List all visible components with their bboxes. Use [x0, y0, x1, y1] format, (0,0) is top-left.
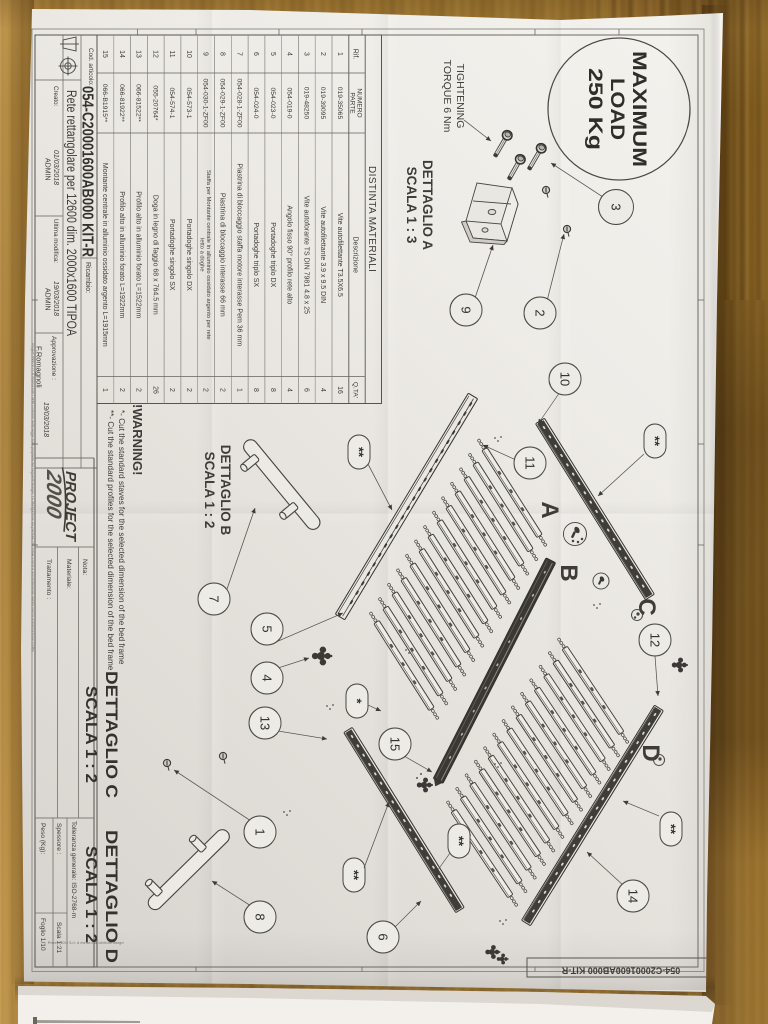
svg-text:DETTAGLIO D: DETTAGLIO D: [102, 830, 121, 963]
svg-text:Creato:: Creato:: [52, 86, 59, 107]
svg-text:Vite autofilettante T3.5X6.5: Vite autofilettante T3.5X6.5: [336, 213, 343, 297]
svg-text:3: 3: [302, 52, 309, 56]
svg-text:2: 2: [319, 52, 326, 56]
svg-text:2: 2: [118, 388, 125, 392]
svg-text:15: 15: [387, 737, 402, 751]
svg-text:Materiale:: Materiale:: [65, 559, 72, 589]
svg-text:054-019-0: 054-019-0: [286, 88, 293, 119]
svg-text:Project 2000 S.r.l. si riserva: Project 2000 S.r.l. si riserva tutti i d…: [31, 343, 35, 652]
svg-text:3: 3: [608, 203, 623, 210]
svg-text:19/03/2018: 19/03/2018: [52, 281, 59, 316]
svg-text:10: 10: [185, 50, 192, 58]
svg-text:**: **: [347, 870, 362, 881]
svg-text:TORQUE 6 Nm: TORQUE 6 Nm: [441, 60, 453, 133]
svg-text:Profilo alto in alluminio fora: Profilo alto in alluminio forato L=1522m…: [135, 191, 142, 318]
svg-text:054-574-1: 054-574-1: [168, 88, 175, 119]
svg-text:Staffa per Montante centrale i: Staffa per Montante centrale in allumini…: [205, 170, 211, 340]
svg-text:1: 1: [252, 828, 267, 835]
svg-text:4: 4: [319, 388, 326, 392]
svg-text:054-028-1-ZF00: 054-028-1-ZF00: [235, 78, 242, 127]
svg-text:LOAD: LOAD: [606, 78, 628, 140]
svg-text:letto a doghe: letto a doghe: [199, 238, 205, 272]
svg-text:Piastrina di bloccaggio staff: Piastrina di bloccaggio staffa motore in…: [235, 163, 242, 346]
svg-text:019-39095: 019-39095: [319, 87, 326, 120]
svg-text:9: 9: [458, 306, 473, 313]
svg-text:Piastrina di bloccaggio intera: Piastrina di bloccaggio interasse 66 mm: [219, 193, 226, 317]
svg-text:2: 2: [168, 388, 175, 392]
svg-text:11: 11: [522, 456, 537, 470]
svg-text:054-C20001600AB000 KIT-R: 054-C20001600AB000 KIT-R: [561, 966, 680, 976]
svg-text:7: 7: [206, 595, 221, 602]
svg-text:Rif.: Rif.: [352, 49, 359, 60]
svg-text:PARTE: PARTE: [349, 92, 356, 114]
svg-text:1: 1: [336, 52, 343, 56]
svg-text:8: 8: [269, 388, 276, 392]
svg-text:019-35065: 019-35065: [336, 87, 343, 120]
svg-text:Portadoghe triplo DX: Portadoghe triplo DX: [269, 222, 276, 287]
svg-text:15: 15: [101, 50, 108, 58]
svg-text:11: 11: [168, 50, 175, 57]
svg-text:**: **: [648, 436, 663, 447]
svg-text:5: 5: [269, 52, 276, 56]
svg-text:066-81922**: 066-81922**: [118, 84, 125, 122]
svg-text:Scala 1:21: Scala 1:21: [55, 922, 62, 953]
svg-text:26: 26: [151, 386, 158, 394]
svg-text:Foglio 1/10: Foglio 1/10: [39, 918, 46, 951]
svg-text:066-B1915**: 066-B1915**: [101, 84, 108, 123]
svg-text:054-C20001600AB000 KIT-R: 054-C20001600AB000 KIT-R: [79, 86, 96, 257]
svg-text:14: 14: [625, 889, 640, 903]
svg-text:Tolleranza generale: ISO-2768-: Tolleranza generale: ISO-2768-m: [70, 821, 77, 919]
svg-text:F.Romagnoli: F.Romagnoli: [35, 346, 44, 388]
svg-text:1: 1: [235, 388, 242, 392]
svg-text:1: 1: [101, 388, 108, 392]
svg-text:Nota:: Nota:: [81, 559, 88, 575]
svg-text:054-573-1: 054-573-1: [185, 88, 192, 119]
svg-text:Peso (Kg):: Peso (Kg):: [39, 823, 46, 854]
svg-text:2: 2: [135, 388, 142, 392]
svg-text:Ultima modifica:: Ultima modifica:: [52, 219, 59, 263]
svg-text:**- Cut the standard profiles: **- Cut the standard profiles for the se…: [106, 410, 115, 671]
svg-text:7: 7: [235, 52, 242, 56]
svg-text:Portadoghe singolo DX: Portadoghe singolo DX: [185, 219, 192, 291]
svg-text:Ricambio:: Ricambio:: [84, 262, 91, 293]
svg-text:A: A: [536, 501, 563, 518]
svg-text:19/03/2018: 19/03/2018: [42, 402, 49, 437]
svg-text:054-023-0: 054-023-0: [269, 88, 276, 119]
svg-text:DETTAGLIO C: DETTAGLIO C: [102, 671, 121, 798]
svg-text:2: 2: [202, 388, 209, 392]
svg-text:019-48250: 019-48250: [302, 87, 309, 120]
svg-text:4: 4: [286, 52, 293, 56]
svg-text:2: 2: [532, 309, 547, 316]
svg-text:13: 13: [257, 716, 272, 730]
svg-text:Spessore :: Spessore :: [55, 823, 62, 855]
svg-text:**: **: [664, 824, 679, 835]
svg-text:SCALA 1 : 2: SCALA 1 : 2: [82, 846, 99, 943]
svg-text:054-029-1-ZF00: 054-029-1-ZF00: [219, 78, 226, 127]
svg-text:Approvazione :: Approvazione :: [50, 336, 57, 380]
svg-text:*- Cut the standard staves for: *- Cut the standard staves for the selec…: [117, 410, 126, 665]
svg-text:12: 12: [647, 633, 662, 647]
svg-text:5: 5: [259, 625, 274, 632]
svg-text:B: B: [555, 564, 582, 581]
svg-text:250 Kg: 250 Kg: [584, 68, 606, 150]
svg-text:DETTAGLIO A: DETTAGLIO A: [420, 160, 435, 250]
svg-text:Angolo fisso 90° profilo rete: Angolo fisso 90° profilo rete alto: [286, 205, 294, 304]
svg-text:Trattamento :: Trattamento :: [45, 559, 52, 599]
svg-text:6: 6: [375, 933, 390, 940]
svg-text:14: 14: [118, 50, 125, 58]
svg-text:**: **: [352, 447, 367, 458]
svg-text:Montante centrale in alluminio: Montante centrale in alluminio ossidato …: [101, 163, 108, 347]
svg-text:SCALA 1 : 2: SCALA 1 : 2: [202, 452, 217, 529]
svg-text:SCALA 1 : 3: SCALA 1 : 3: [404, 167, 419, 244]
svg-text:8: 8: [252, 913, 267, 920]
svg-text:Vite autoforante TS DIN 7981 4: Vite autoforante TS DIN 7981 4.8 x 25: [302, 196, 309, 315]
svg-text:Profilo alto in alluminio fora: Profilo alto in alluminio forato L=1922m…: [118, 191, 125, 318]
svg-text:NUMERO: NUMERO: [356, 88, 363, 117]
svg-text:12: 12: [151, 50, 158, 58]
svg-text:TIGHTENING: TIGHTENING: [454, 64, 466, 129]
svg-text:6: 6: [302, 388, 309, 392]
svg-text:055-20764*: 055-20764*: [151, 85, 158, 121]
svg-text:!WARNING!: !WARNING!: [130, 404, 145, 476]
svg-text:4: 4: [286, 388, 293, 392]
svg-text:ADMIN: ADMIN: [44, 288, 51, 311]
svg-text:6: 6: [252, 52, 259, 56]
svg-text:8: 8: [252, 388, 259, 392]
svg-text:8: 8: [219, 52, 226, 56]
svg-text:DISTINTA MATERIALI: DISTINTA MATERIALI: [366, 166, 377, 272]
svg-text:SCALA 1 : 2: SCALA 1 : 2: [82, 686, 99, 783]
svg-text:2: 2: [219, 388, 226, 392]
svg-text:054-030-1-ZF00: 054-030-1-ZF00: [202, 78, 209, 127]
svg-text:Portadoghe singolo SX: Portadoghe singolo SX: [168, 219, 175, 291]
svg-text:9: 9: [202, 52, 209, 56]
svg-text:4: 4: [259, 674, 274, 681]
svg-text:054-024-0: 054-024-0: [252, 88, 259, 119]
svg-text:Vite autofilettante 3.9 x 9.5: Vite autofilettante 3.9 x 9.5 DIN: [319, 206, 326, 303]
svg-text:13: 13: [135, 50, 142, 58]
svg-text:01/03/2018: 01/03/2018: [52, 150, 59, 185]
svg-text:10: 10: [557, 372, 572, 386]
svg-text:2000: 2000: [42, 467, 66, 521]
svg-text:Portadoghe triplo SX: Portadoghe triplo SX: [252, 222, 259, 287]
svg-text:**: **: [452, 836, 467, 847]
svg-text:16: 16: [336, 386, 343, 394]
svg-text:Q.TA': Q.TA': [352, 382, 359, 398]
svg-text:DETTAGLIO B: DETTAGLIO B: [218, 445, 233, 536]
svg-text:Cod. articolo:: Cod. articolo:: [87, 48, 94, 86]
svg-text:Doga in legno di faggio 68 x 7: Doga in legno di faggio 68 x 764.5 mm: [151, 195, 158, 315]
svg-text:2: 2: [185, 388, 192, 392]
svg-text:Descrizione: Descrizione: [352, 237, 359, 274]
svg-text:ADMIN: ADMIN: [44, 158, 51, 181]
svg-text:066-81522**: 066-81522**: [135, 84, 142, 122]
svg-text:Rete rettangolare per 12600 di: Rete rettangolare per 12600 dim. 2000x16…: [64, 90, 79, 336]
svg-text:MAXIMUM: MAXIMUM: [628, 51, 650, 167]
